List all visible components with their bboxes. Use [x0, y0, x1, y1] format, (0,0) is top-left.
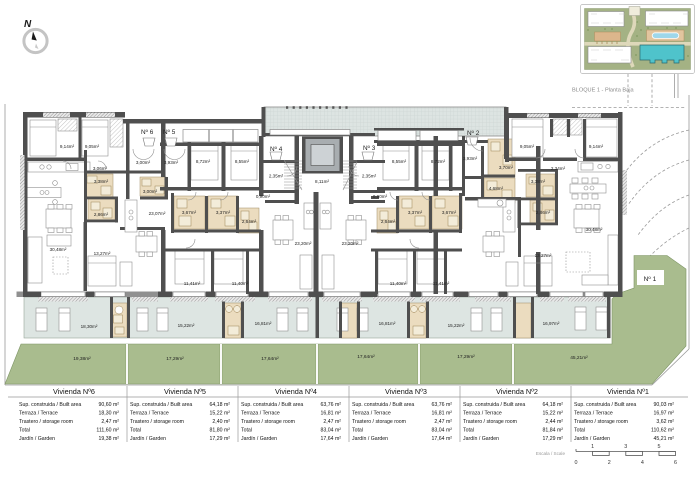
svg-text:6: 6	[674, 460, 677, 466]
svg-text:64,18 m²: 64,18 m²	[543, 402, 564, 408]
svg-text:16,97 m²: 16,97 m²	[654, 411, 675, 417]
svg-text:13,27m²: 13,27m²	[535, 253, 552, 258]
svg-text:15,22m²: 15,22m²	[448, 323, 465, 328]
svg-text:18,30m²: 18,30m²	[81, 324, 98, 329]
svg-text:2,47 m²: 2,47 m²	[434, 419, 452, 425]
svg-text:Total: Total	[130, 428, 141, 434]
svg-text:Trastero / storage room: Trastero / storage room	[574, 419, 628, 425]
svg-text:Terraza / Terrace: Terraza / Terrace	[130, 411, 169, 417]
svg-text:4: 4	[641, 460, 644, 466]
svg-text:Vivienda Nº5: Vivienda Nº5	[164, 387, 206, 396]
svg-text:3,37m²: 3,37m²	[216, 210, 231, 215]
svg-text:3,62 m²: 3,62 m²	[656, 419, 674, 425]
svg-text:17,64m²: 17,64m²	[357, 354, 375, 360]
svg-text:16,81m²: 16,81m²	[255, 321, 272, 326]
svg-text:Sup. construida / Built area: Sup. construida / Built area	[574, 402, 636, 408]
svg-text:8,72m²: 8,72m²	[431, 159, 446, 164]
svg-text:17,64m²: 17,64m²	[261, 356, 279, 362]
svg-text:Trastero / storage room: Trastero / storage room	[352, 419, 406, 425]
svg-text:2,34m²: 2,34m²	[551, 166, 566, 171]
svg-text:3,70m²: 3,70m²	[499, 165, 514, 170]
svg-text:8,11m²: 8,11m²	[315, 179, 329, 184]
svg-text:9,14m²: 9,14m²	[589, 144, 604, 149]
svg-text:2,35m²: 2,35m²	[362, 174, 377, 179]
svg-text:90,03 m²: 90,03 m²	[654, 402, 675, 408]
svg-text:16,97m²: 16,97m²	[543, 321, 560, 326]
svg-text:11,40m²: 11,40m²	[390, 281, 407, 286]
svg-text:63,76 m²: 63,76 m²	[321, 402, 342, 408]
svg-text:Nº 6: Nº 6	[141, 129, 154, 136]
svg-text:23,20m²: 23,20m²	[342, 241, 359, 246]
svg-text:Nº 3: Nº 3	[363, 145, 376, 152]
svg-text:3: 3	[624, 444, 627, 450]
svg-text:Trastero / storage room: Trastero / storage room	[241, 419, 295, 425]
svg-text:45,21 m²: 45,21 m²	[654, 436, 675, 442]
svg-text:Jardín / Garden: Jardín / Garden	[463, 436, 499, 442]
svg-text:N: N	[24, 19, 32, 30]
svg-text:Sup. construida / Built area: Sup. construida / Built area	[463, 402, 525, 408]
svg-text:2,47 m²: 2,47 m²	[101, 419, 119, 425]
svg-text:3,38m²: 3,38m²	[531, 179, 546, 184]
svg-text:11,40m²: 11,40m²	[232, 281, 249, 286]
svg-text:9,05m²: 9,05m²	[520, 144, 535, 149]
svg-text:2,86m²: 2,86m²	[94, 212, 109, 217]
svg-text:15,22m²: 15,22m²	[178, 323, 195, 328]
svg-text:13,27m²: 13,27m²	[94, 251, 111, 256]
svg-text:Total: Total	[241, 428, 252, 434]
svg-text:15,22 m²: 15,22 m²	[543, 411, 564, 417]
svg-text:Nº 4: Nº 4	[270, 146, 283, 153]
svg-text:Terraza / Terrace: Terraza / Terrace	[352, 411, 391, 417]
svg-text:5: 5	[658, 444, 661, 450]
svg-text:Total: Total	[574, 428, 585, 434]
svg-text:Jardín / Garden: Jardín / Garden	[352, 436, 388, 442]
svg-text:Terraza / Terrace: Terraza / Terrace	[19, 411, 58, 417]
svg-text:3,93m²: 3,93m²	[463, 156, 478, 161]
svg-text:Trastero / storage room: Trastero / storage room	[19, 419, 73, 425]
svg-text:3,93m²: 3,93m²	[164, 160, 179, 165]
svg-text:19,38m²: 19,38m²	[73, 356, 91, 362]
svg-text:23,07m²: 23,07m²	[149, 211, 166, 216]
svg-text:8,72m²: 8,72m²	[196, 159, 211, 164]
svg-text:Trastero / storage room: Trastero / storage room	[463, 419, 517, 425]
svg-text:Sup. construida / Built area: Sup. construida / Built area	[352, 402, 414, 408]
svg-text:Total: Total	[463, 428, 474, 434]
svg-text:2,40 m²: 2,40 m²	[212, 419, 230, 425]
svg-text:3,38m²: 3,38m²	[94, 179, 109, 184]
svg-text:9,05m²: 9,05m²	[85, 144, 100, 149]
svg-text:Terraza / Terrace: Terraza / Terrace	[574, 411, 613, 417]
svg-text:3,37m²: 3,37m²	[408, 210, 423, 215]
svg-text:Sup. construida / Built area: Sup. construida / Built area	[19, 402, 81, 408]
svg-text:3,67m²: 3,67m²	[182, 210, 197, 215]
svg-text:Nº 1: Nº 1	[644, 276, 657, 283]
svg-text:16,81 m²: 16,81 m²	[321, 411, 342, 417]
svg-text:Vivienda Nº3: Vivienda Nº3	[385, 387, 427, 396]
svg-text:2,35m²: 2,35m²	[269, 174, 284, 179]
svg-text:2,86m²: 2,86m²	[536, 210, 551, 215]
svg-text:17,64 m²: 17,64 m²	[432, 436, 453, 442]
svg-text:81,80 m²: 81,80 m²	[210, 428, 231, 434]
svg-text:111,60 m²: 111,60 m²	[96, 428, 119, 434]
svg-text:110,62 m²: 110,62 m²	[651, 428, 674, 434]
svg-text:2,47 m²: 2,47 m²	[323, 419, 341, 425]
svg-text:Vivienda Nº4: Vivienda Nº4	[275, 387, 317, 396]
svg-text:15,22 m²: 15,22 m²	[210, 411, 231, 417]
svg-text:83,04 m²: 83,04 m²	[432, 428, 453, 434]
svg-text:23,20m²: 23,20m²	[295, 241, 312, 246]
svg-text:3,00m²: 3,00m²	[136, 160, 151, 165]
svg-text:16,81 m²: 16,81 m²	[432, 411, 453, 417]
svg-text:Total: Total	[19, 428, 30, 434]
svg-text:8,55m²: 8,55m²	[235, 159, 250, 164]
svg-text:90,60 m²: 90,60 m²	[99, 402, 120, 408]
svg-text:Nº 2: Nº 2	[467, 130, 480, 137]
svg-text:18,30 m²: 18,30 m²	[99, 411, 120, 417]
svg-text:Vivienda Nº6: Vivienda Nº6	[53, 387, 95, 396]
svg-text:Terraza / Terrace: Terraza / Terrace	[241, 411, 280, 417]
svg-text:19,38 m²: 19,38 m²	[99, 436, 120, 442]
svg-text:17,29m²: 17,29m²	[457, 354, 475, 360]
svg-text:2,64m²: 2,64m²	[381, 219, 396, 224]
svg-text:1: 1	[591, 444, 594, 450]
svg-text:0,90m²: 0,90m²	[256, 194, 271, 199]
svg-text:30,48m²: 30,48m²	[586, 227, 603, 232]
svg-text:Jardín / Garden: Jardín / Garden	[19, 436, 55, 442]
svg-text:30,48m²: 30,48m²	[50, 247, 67, 252]
svg-text:17,29m²: 17,29m²	[166, 356, 184, 362]
svg-text:11,41m²: 11,41m²	[184, 281, 201, 286]
svg-text:Trastero / storage room: Trastero / storage room	[130, 419, 184, 425]
svg-text:2: 2	[608, 460, 611, 466]
svg-text:3,67m²: 3,67m²	[442, 210, 457, 215]
svg-text:BLOQUE 1 - Planta Baja: BLOQUE 1 - Planta Baja	[572, 88, 634, 94]
svg-text:Escala / Scale: Escala / Scale	[536, 451, 566, 456]
svg-text:45,21m²: 45,21m²	[570, 355, 588, 361]
svg-text:4,68m²: 4,68m²	[489, 186, 504, 191]
svg-text:Terraza / Terrace: Terraza / Terrace	[463, 411, 502, 417]
svg-text:0: 0	[575, 460, 578, 466]
svg-text:Sup. construida / Built area: Sup. construida / Built area	[241, 402, 303, 408]
svg-text:3,00m²: 3,00m²	[143, 189, 158, 194]
svg-text:0,90m²: 0,90m²	[373, 194, 388, 199]
svg-text:17,29 m²: 17,29 m²	[210, 436, 231, 442]
svg-text:17,29 m²: 17,29 m²	[543, 436, 564, 442]
svg-text:Sup. construida / Built area: Sup. construida / Built area	[130, 402, 192, 408]
svg-text:83,04 m²: 83,04 m²	[321, 428, 342, 434]
svg-text:17,64 m²: 17,64 m²	[321, 436, 342, 442]
svg-text:Jardín / Garden: Jardín / Garden	[130, 436, 166, 442]
svg-text:2,64m²: 2,64m²	[242, 219, 257, 224]
svg-text:9,14m²: 9,14m²	[60, 144, 75, 149]
svg-text:Jardín / Garden: Jardín / Garden	[574, 436, 610, 442]
svg-text:Vivienda Nº1: Vivienda Nº1	[607, 387, 649, 396]
svg-text:16,81m²: 16,81m²	[379, 321, 396, 326]
svg-text:2,44 m²: 2,44 m²	[545, 419, 563, 425]
svg-text:Total: Total	[352, 428, 363, 434]
svg-text:63,76 m²: 63,76 m²	[432, 402, 453, 408]
svg-text:Nº 5: Nº 5	[163, 129, 176, 136]
svg-text:11,41m²: 11,41m²	[433, 281, 450, 286]
svg-text:8,55m²: 8,55m²	[392, 159, 407, 164]
svg-text:64,18 m²: 64,18 m²	[210, 402, 231, 408]
svg-text:Vivienda Nº2: Vivienda Nº2	[496, 387, 538, 396]
svg-text:Jardín / Garden: Jardín / Garden	[241, 436, 277, 442]
svg-text:81,84 m²: 81,84 m²	[543, 428, 564, 434]
